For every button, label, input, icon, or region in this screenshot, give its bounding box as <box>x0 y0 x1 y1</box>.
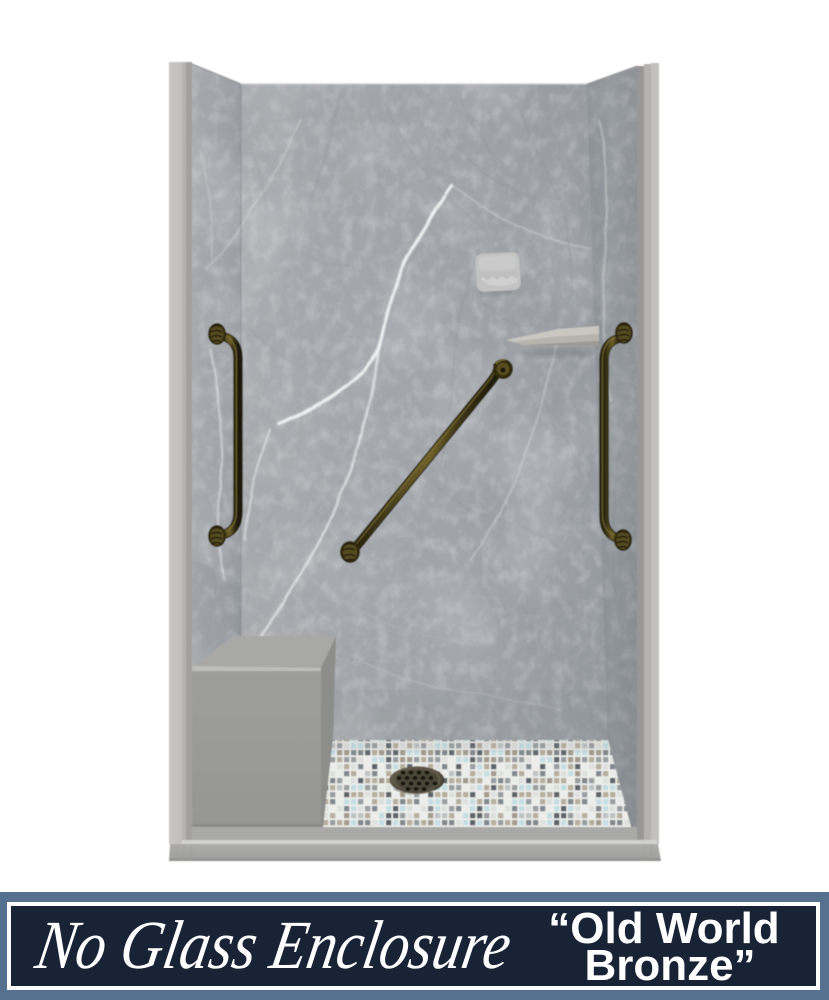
svg-text:Bronze”: Bronze” <box>584 941 755 990</box>
svg-text:No Glass Enclosure: No Glass Enclosure <box>30 907 517 983</box>
